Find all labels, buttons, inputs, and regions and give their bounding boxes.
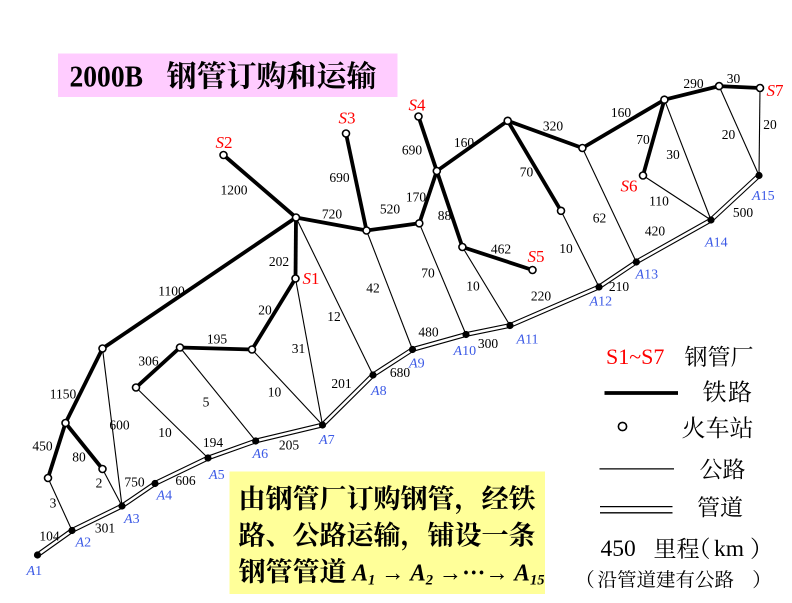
svg-text:S3: S3: [339, 109, 356, 128]
svg-text:480: 480: [418, 325, 439, 340]
svg-text:1200: 1200: [221, 183, 248, 198]
svg-text:12: 12: [327, 309, 341, 324]
svg-text:690: 690: [402, 143, 423, 158]
svg-text:10: 10: [559, 241, 573, 256]
svg-text:30: 30: [666, 147, 680, 162]
svg-text:80: 80: [72, 450, 86, 465]
svg-text:420: 420: [645, 224, 666, 239]
svg-text:km: km: [714, 536, 744, 562]
svg-text:30: 30: [727, 71, 741, 86]
svg-text:A15: A15: [751, 189, 775, 204]
svg-text:62: 62: [593, 211, 607, 226]
svg-text:A8: A8: [370, 384, 387, 399]
svg-text:31: 31: [292, 341, 306, 356]
svg-text:690: 690: [329, 170, 350, 185]
svg-text:2: 2: [96, 476, 103, 491]
svg-text:201: 201: [331, 376, 351, 391]
svg-text:1100: 1100: [158, 284, 185, 299]
svg-text:20: 20: [722, 127, 736, 142]
svg-text:A10: A10: [453, 344, 477, 359]
svg-text:70: 70: [636, 132, 650, 147]
svg-text:202: 202: [269, 254, 289, 269]
svg-text:42: 42: [366, 281, 380, 296]
svg-text:S7: S7: [767, 81, 785, 100]
svg-text:5: 5: [203, 395, 210, 410]
svg-text:170: 170: [406, 190, 427, 205]
svg-text:205: 205: [279, 438, 300, 453]
svg-text:450: 450: [32, 439, 53, 454]
svg-text:320: 320: [543, 119, 564, 134]
svg-text:S1: S1: [303, 269, 320, 288]
svg-text:A6: A6: [252, 447, 269, 462]
svg-text:20: 20: [763, 117, 777, 132]
svg-text:680: 680: [390, 365, 411, 380]
svg-text:20: 20: [258, 303, 272, 318]
svg-text:195: 195: [207, 332, 228, 347]
svg-text:600: 600: [109, 418, 130, 433]
svg-text:A12: A12: [589, 295, 613, 310]
svg-text:606: 606: [175, 473, 196, 488]
svg-text:A13: A13: [635, 268, 659, 283]
svg-text:2000B: 2000B: [70, 59, 144, 94]
svg-text:A5: A5: [208, 468, 225, 483]
svg-text:A1: A1: [26, 564, 43, 579]
svg-text:S4: S4: [409, 96, 427, 115]
svg-text:450: 450: [601, 536, 636, 562]
svg-text:10: 10: [466, 279, 480, 294]
svg-text:A14: A14: [704, 236, 728, 251]
svg-text:A11: A11: [516, 333, 539, 348]
svg-text:S6: S6: [621, 177, 638, 196]
svg-text:A9: A9: [408, 357, 425, 372]
svg-text:3: 3: [50, 496, 57, 511]
svg-text:462: 462: [491, 242, 511, 257]
svg-text:70: 70: [421, 266, 435, 281]
svg-text:S2: S2: [216, 133, 233, 152]
svg-text:A7: A7: [318, 433, 335, 448]
svg-text:S5: S5: [528, 247, 545, 266]
svg-text:10: 10: [158, 425, 172, 440]
svg-text:A3: A3: [123, 512, 140, 527]
svg-text:A2: A2: [75, 536, 92, 551]
svg-text:S1~S7: S1~S7: [606, 344, 664, 369]
svg-text:220: 220: [531, 289, 552, 304]
svg-text:720: 720: [322, 207, 343, 222]
svg-text:301: 301: [95, 521, 115, 536]
svg-text:160: 160: [454, 135, 475, 150]
svg-text:500: 500: [733, 205, 754, 220]
svg-text:88: 88: [438, 208, 452, 223]
svg-text:160: 160: [611, 105, 632, 120]
svg-text:210: 210: [609, 279, 630, 294]
svg-text:104: 104: [39, 529, 60, 544]
svg-text:194: 194: [203, 435, 224, 450]
svg-text:70: 70: [520, 165, 534, 180]
svg-text:306: 306: [138, 354, 159, 369]
svg-text:1150: 1150: [50, 387, 77, 402]
svg-text:300: 300: [478, 336, 499, 351]
svg-text:750: 750: [124, 475, 145, 490]
svg-text:10: 10: [268, 385, 282, 400]
svg-text:520: 520: [380, 202, 401, 217]
svg-text:110: 110: [649, 194, 669, 209]
svg-text:A1 → A2 →···→ A15: A1 → A2 →···→ A15: [351, 561, 545, 589]
svg-text:A4: A4: [156, 489, 173, 504]
svg-text:290: 290: [683, 76, 704, 91]
